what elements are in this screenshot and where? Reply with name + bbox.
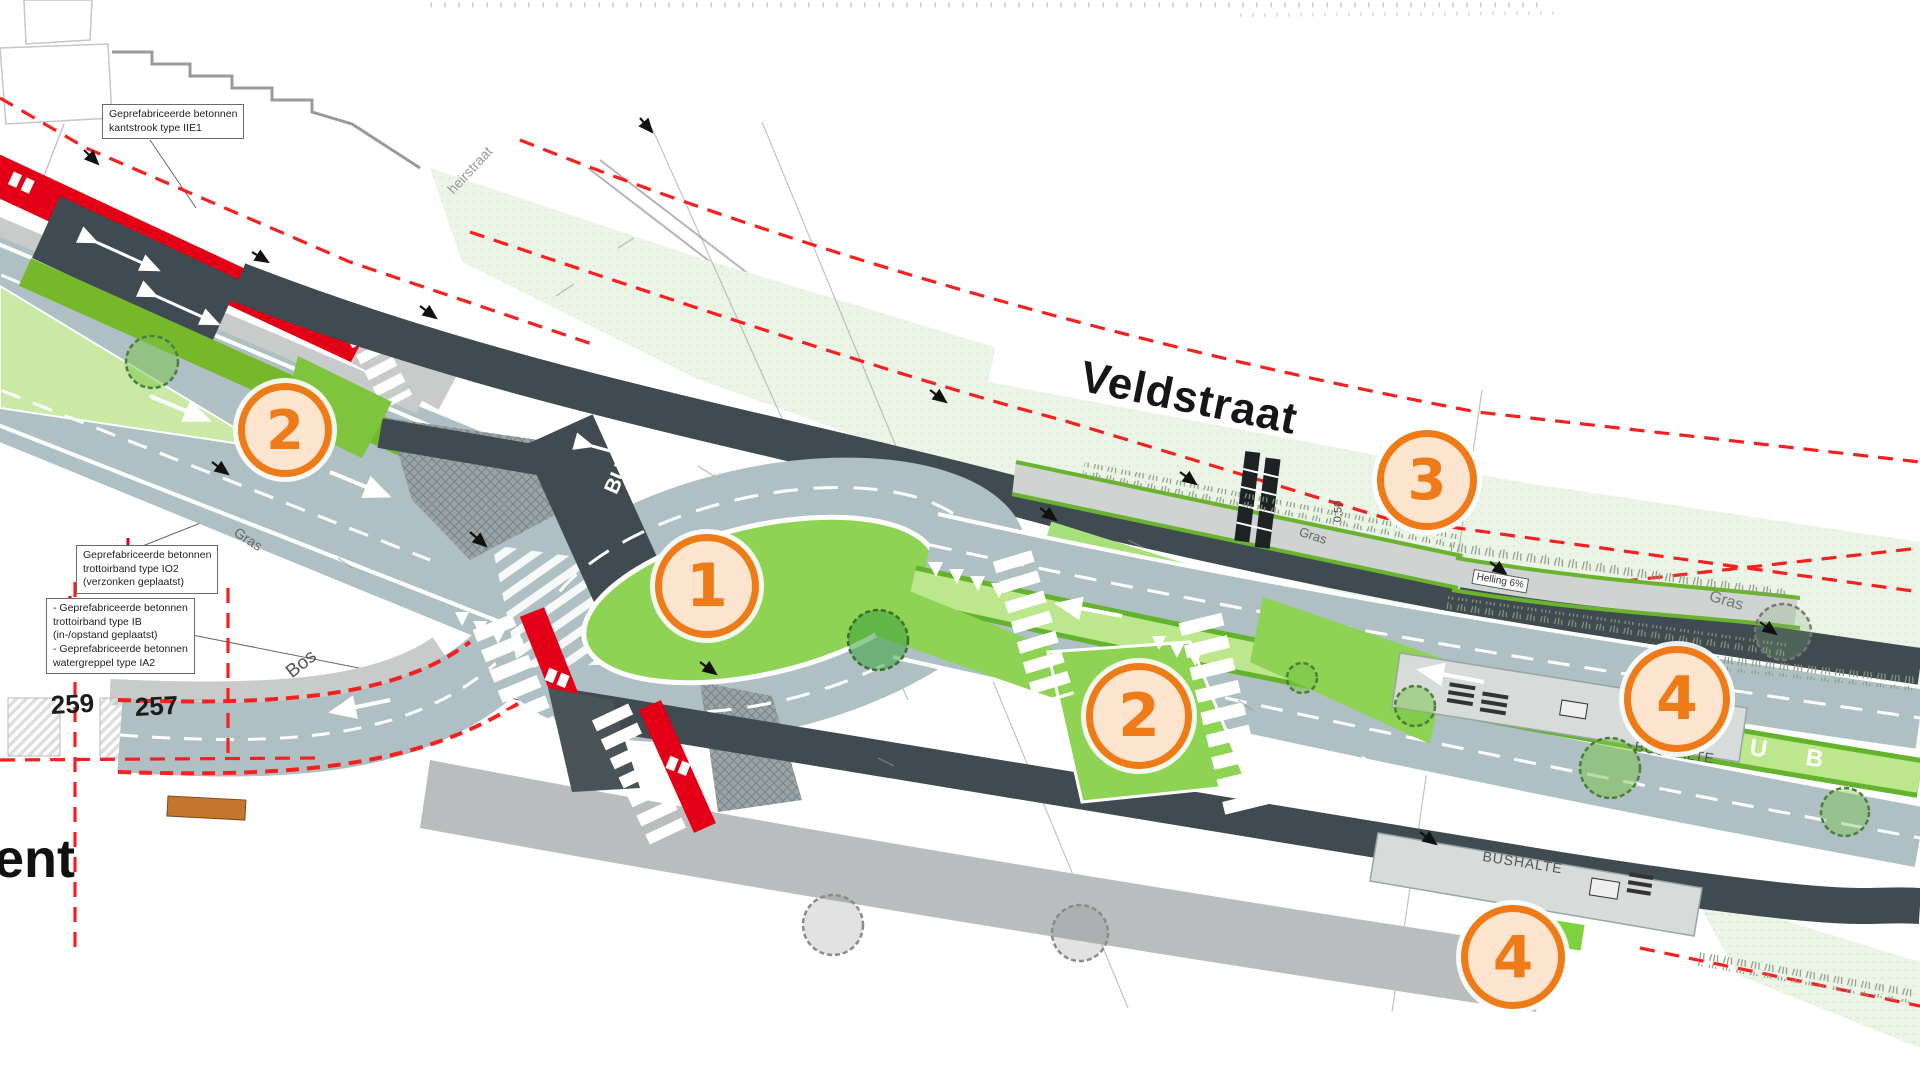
tree-icon (1287, 663, 1317, 693)
tree-icon (1755, 604, 1811, 660)
plan-drawing (0, 0, 1920, 1080)
top-edge-ticks (430, 5, 1560, 15)
green-patch (1549, 920, 1585, 951)
tree-icon (1580, 738, 1640, 798)
tree-icon (848, 610, 908, 670)
bench (167, 796, 246, 820)
tree-icon (803, 895, 863, 955)
road-design-plan: { "street_labels": { "veldstraat": "Veld… (0, 0, 1920, 1080)
tree-icon (126, 336, 178, 388)
tree-icon (1395, 686, 1435, 726)
tree-icon (1052, 905, 1108, 961)
tree-icon (1821, 788, 1869, 836)
